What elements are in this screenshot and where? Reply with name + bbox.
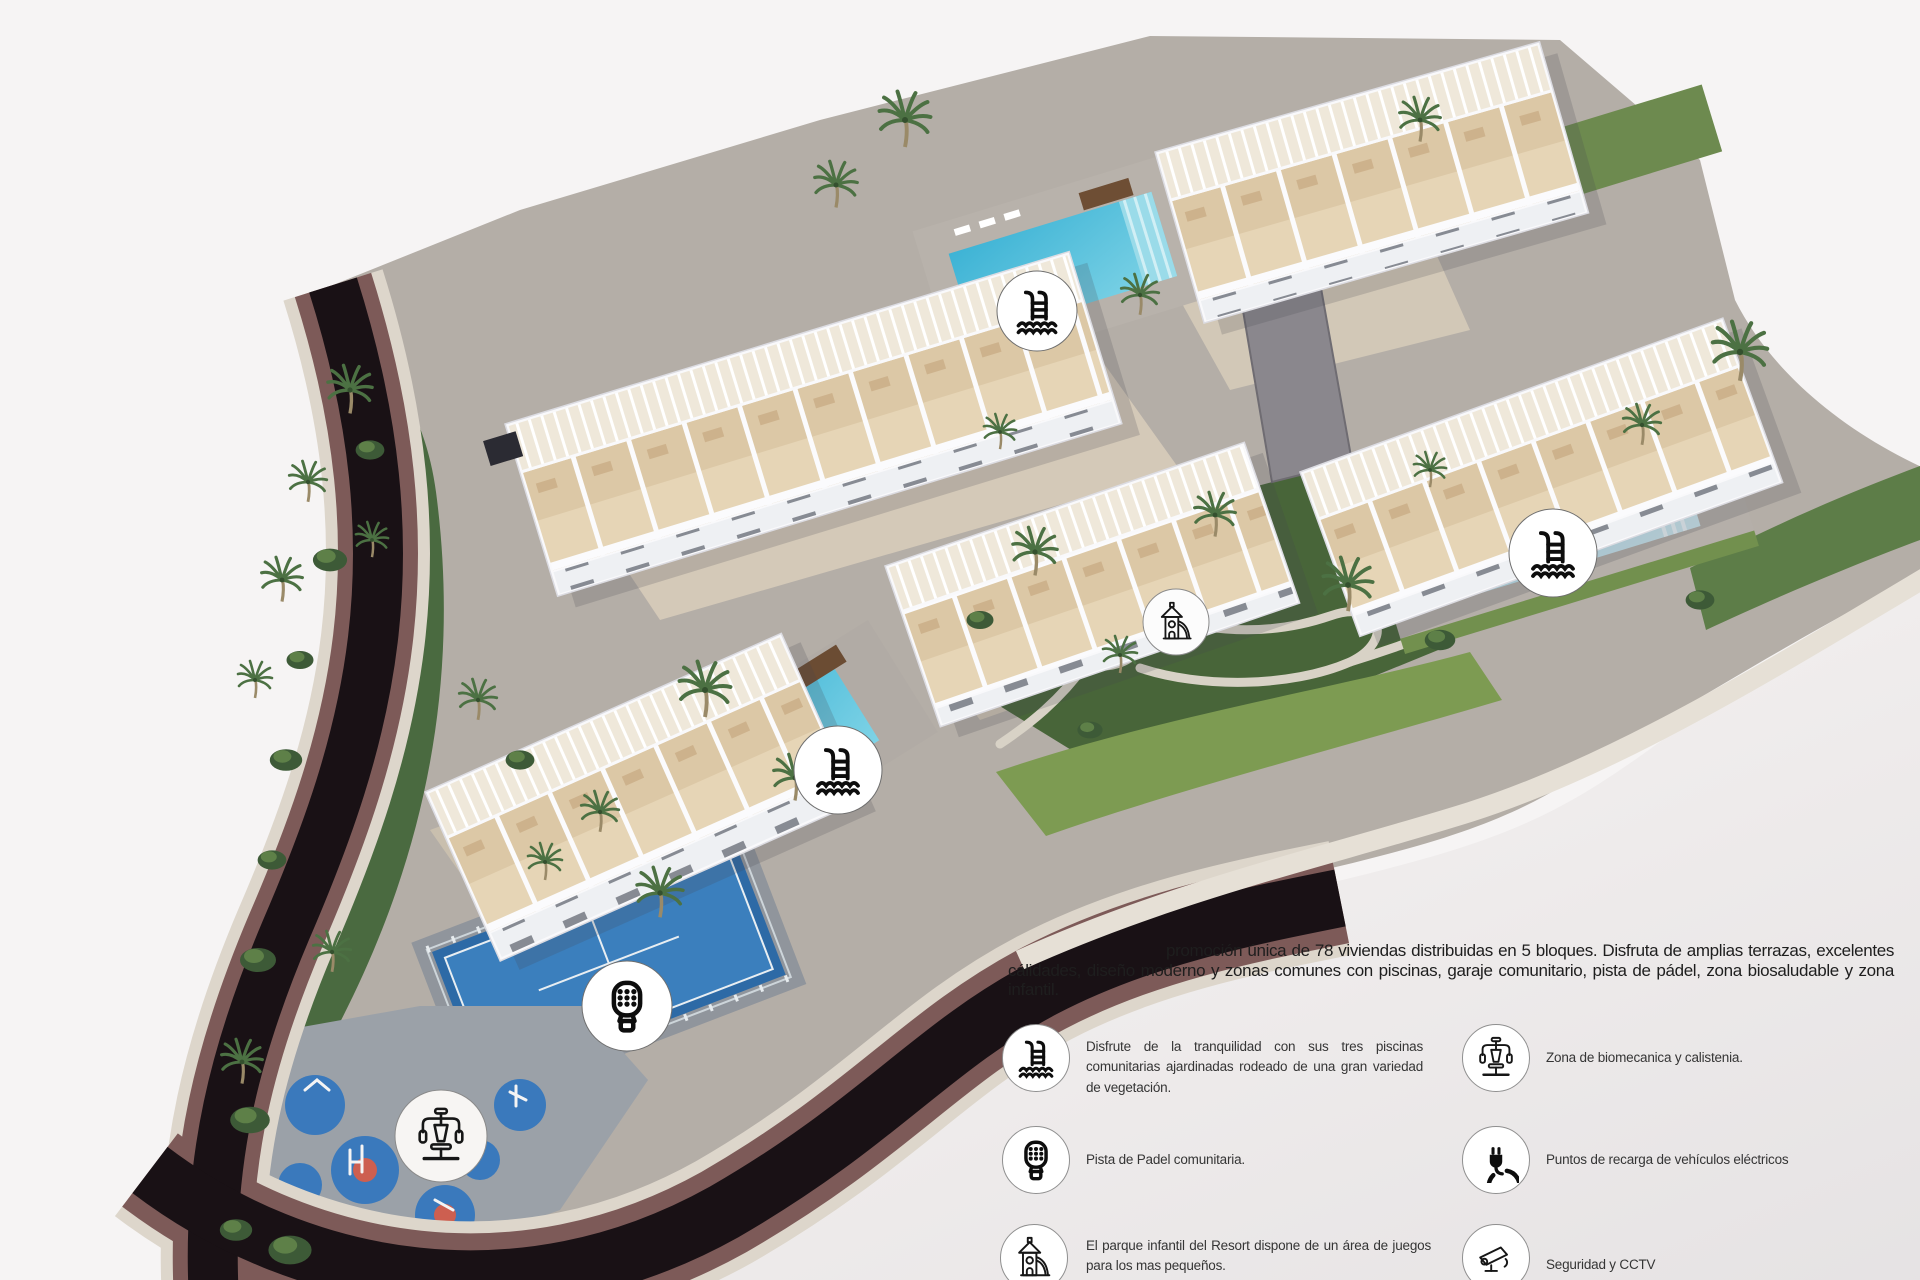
brochure-page: promoción única de 78 viviendas distribu… (0, 0, 1920, 1280)
map-pool-marker-right (1509, 509, 1597, 597)
map-gym-marker (395, 1090, 487, 1182)
site-plan-render (0, 0, 1920, 1280)
map-playground-marker (1143, 589, 1209, 655)
map-pool-marker-top (997, 271, 1077, 351)
map-padel-marker (582, 961, 672, 1051)
map-pool-marker-center (794, 726, 882, 814)
